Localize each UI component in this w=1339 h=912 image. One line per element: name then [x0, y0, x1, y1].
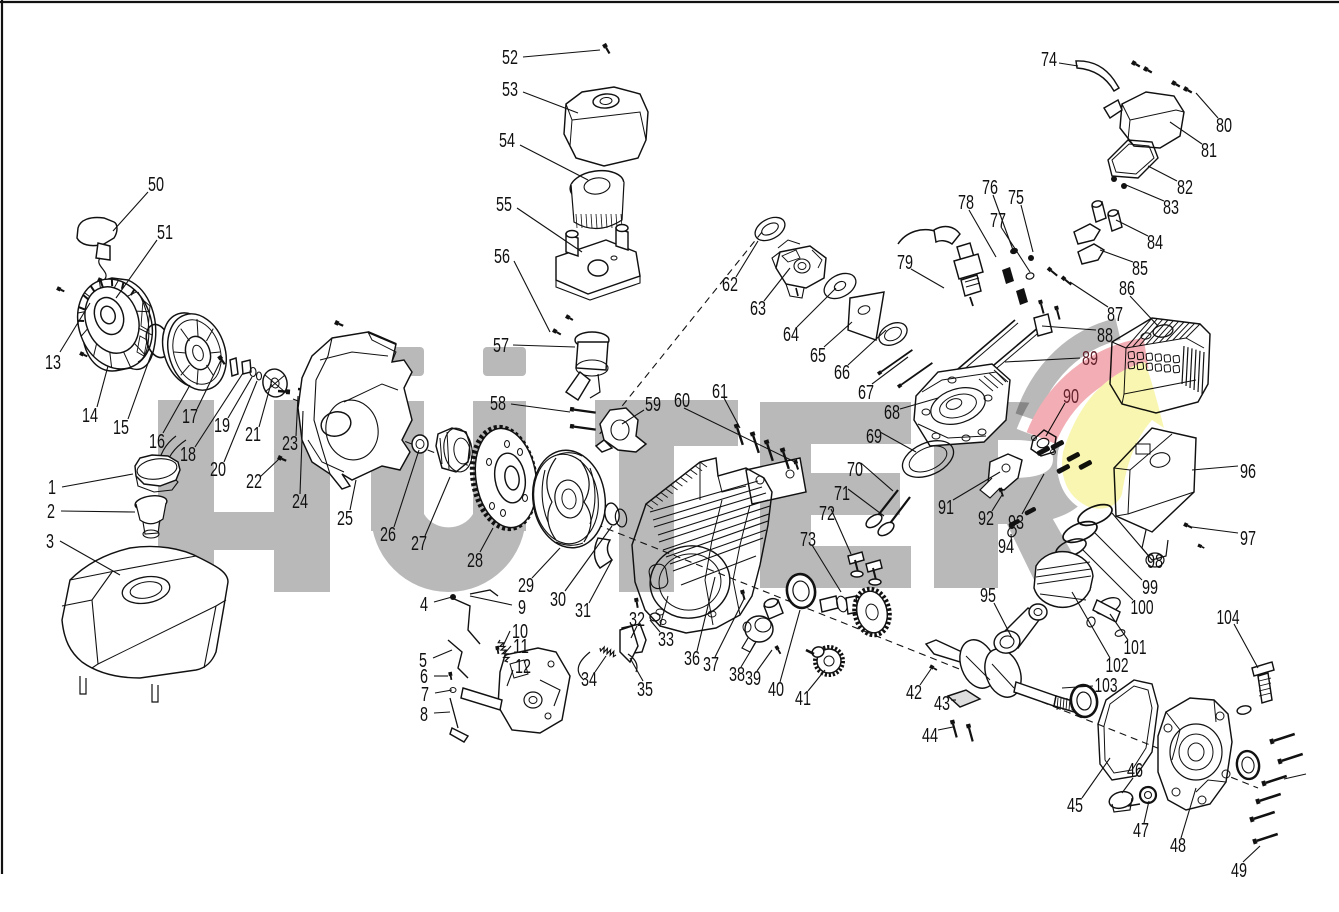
svg-text:62: 62 — [722, 274, 738, 296]
svg-text:16: 16 — [149, 431, 165, 453]
svg-text:8: 8 — [420, 704, 428, 726]
svg-text:34: 34 — [581, 669, 597, 691]
svg-text:70: 70 — [847, 459, 863, 481]
svg-text:28: 28 — [467, 550, 483, 572]
svg-text:43: 43 — [934, 693, 950, 715]
svg-text:30: 30 — [550, 589, 566, 611]
svg-text:26: 26 — [380, 524, 396, 546]
svg-text:1: 1 — [48, 477, 56, 499]
svg-text:97: 97 — [1240, 528, 1256, 550]
svg-text:25: 25 — [337, 508, 353, 530]
svg-text:32: 32 — [629, 609, 645, 631]
svg-text:54: 54 — [499, 130, 515, 152]
svg-text:18: 18 — [180, 444, 196, 466]
svg-text:14: 14 — [82, 405, 98, 427]
svg-text:56: 56 — [494, 246, 510, 268]
svg-text:37: 37 — [703, 654, 719, 676]
svg-text:76: 76 — [982, 177, 998, 199]
svg-text:52: 52 — [502, 47, 518, 69]
svg-text:17: 17 — [182, 406, 198, 428]
svg-text:73: 73 — [800, 529, 816, 551]
svg-text:42: 42 — [906, 682, 922, 704]
svg-text:84: 84 — [1147, 232, 1163, 254]
svg-text:80: 80 — [1216, 115, 1232, 137]
svg-text:66: 66 — [834, 362, 850, 384]
svg-text:102: 102 — [1106, 655, 1129, 677]
svg-text:100: 100 — [1131, 597, 1154, 619]
svg-text:59: 59 — [645, 394, 661, 416]
svg-text:51: 51 — [157, 222, 173, 244]
svg-text:60: 60 — [674, 390, 690, 412]
svg-text:64: 64 — [783, 324, 799, 346]
svg-text:57: 57 — [493, 335, 509, 357]
svg-text:49: 49 — [1231, 860, 1247, 882]
svg-text:44: 44 — [922, 725, 938, 747]
svg-text:98: 98 — [1147, 551, 1163, 573]
svg-text:74: 74 — [1041, 49, 1057, 71]
svg-text:41: 41 — [795, 688, 811, 710]
svg-text:83: 83 — [1163, 197, 1179, 219]
svg-text:31: 31 — [575, 600, 591, 622]
svg-text:7: 7 — [421, 684, 429, 706]
svg-text:22: 22 — [246, 471, 262, 493]
svg-text:91: 91 — [938, 497, 954, 519]
svg-text:75: 75 — [1008, 187, 1024, 209]
svg-text:2: 2 — [47, 501, 55, 523]
svg-text:13: 13 — [45, 352, 61, 374]
svg-text:20: 20 — [210, 459, 226, 481]
svg-text:33: 33 — [658, 629, 674, 651]
svg-text:89: 89 — [1082, 348, 1098, 370]
svg-text:85: 85 — [1132, 258, 1148, 280]
svg-text:58: 58 — [490, 393, 506, 415]
svg-text:90: 90 — [1063, 386, 1079, 408]
svg-text:71: 71 — [834, 483, 850, 505]
svg-text:12: 12 — [515, 656, 531, 678]
svg-text:27: 27 — [411, 533, 427, 555]
svg-text:24: 24 — [292, 491, 308, 513]
svg-text:50: 50 — [148, 174, 164, 196]
svg-text:93: 93 — [1008, 512, 1024, 534]
svg-text:99: 99 — [1142, 577, 1158, 599]
svg-text:55: 55 — [496, 194, 512, 216]
svg-text:29: 29 — [518, 575, 534, 597]
svg-text:61: 61 — [712, 381, 728, 403]
svg-text:40: 40 — [768, 679, 784, 701]
svg-text:95: 95 — [980, 585, 996, 607]
svg-text:23: 23 — [282, 433, 298, 455]
svg-text:3: 3 — [46, 531, 54, 553]
svg-text:38: 38 — [729, 664, 745, 686]
svg-text:11: 11 — [513, 636, 529, 658]
svg-text:79: 79 — [897, 252, 913, 274]
svg-text:48: 48 — [1170, 835, 1186, 857]
svg-text:4: 4 — [420, 594, 428, 616]
svg-text:68: 68 — [884, 402, 900, 424]
svg-text:81: 81 — [1201, 140, 1217, 162]
svg-text:77: 77 — [990, 210, 1006, 232]
svg-text:19: 19 — [214, 415, 230, 437]
svg-text:72: 72 — [819, 503, 835, 525]
svg-text:21: 21 — [245, 424, 261, 446]
svg-text:35: 35 — [637, 679, 653, 701]
svg-text:88: 88 — [1097, 325, 1113, 347]
svg-text:36: 36 — [684, 648, 700, 670]
svg-text:15: 15 — [113, 417, 129, 439]
svg-text:45: 45 — [1067, 795, 1083, 817]
svg-text:46: 46 — [1127, 760, 1143, 782]
svg-text:82: 82 — [1177, 177, 1193, 199]
svg-text:47: 47 — [1133, 820, 1149, 842]
svg-text:67: 67 — [858, 382, 874, 404]
svg-text:104: 104 — [1217, 607, 1240, 629]
svg-text:39: 39 — [745, 668, 761, 690]
svg-text:69: 69 — [866, 426, 882, 448]
svg-text:9: 9 — [518, 597, 526, 619]
svg-text:94: 94 — [998, 536, 1014, 558]
svg-text:96: 96 — [1240, 461, 1256, 483]
svg-text:63: 63 — [750, 298, 766, 320]
svg-text:65: 65 — [810, 345, 826, 367]
svg-text:86: 86 — [1119, 278, 1135, 300]
svg-text:103: 103 — [1095, 675, 1118, 697]
svg-text:78: 78 — [958, 192, 974, 214]
svg-text:87: 87 — [1107, 304, 1123, 326]
svg-text:53: 53 — [502, 79, 518, 101]
svg-text:92: 92 — [978, 508, 994, 530]
